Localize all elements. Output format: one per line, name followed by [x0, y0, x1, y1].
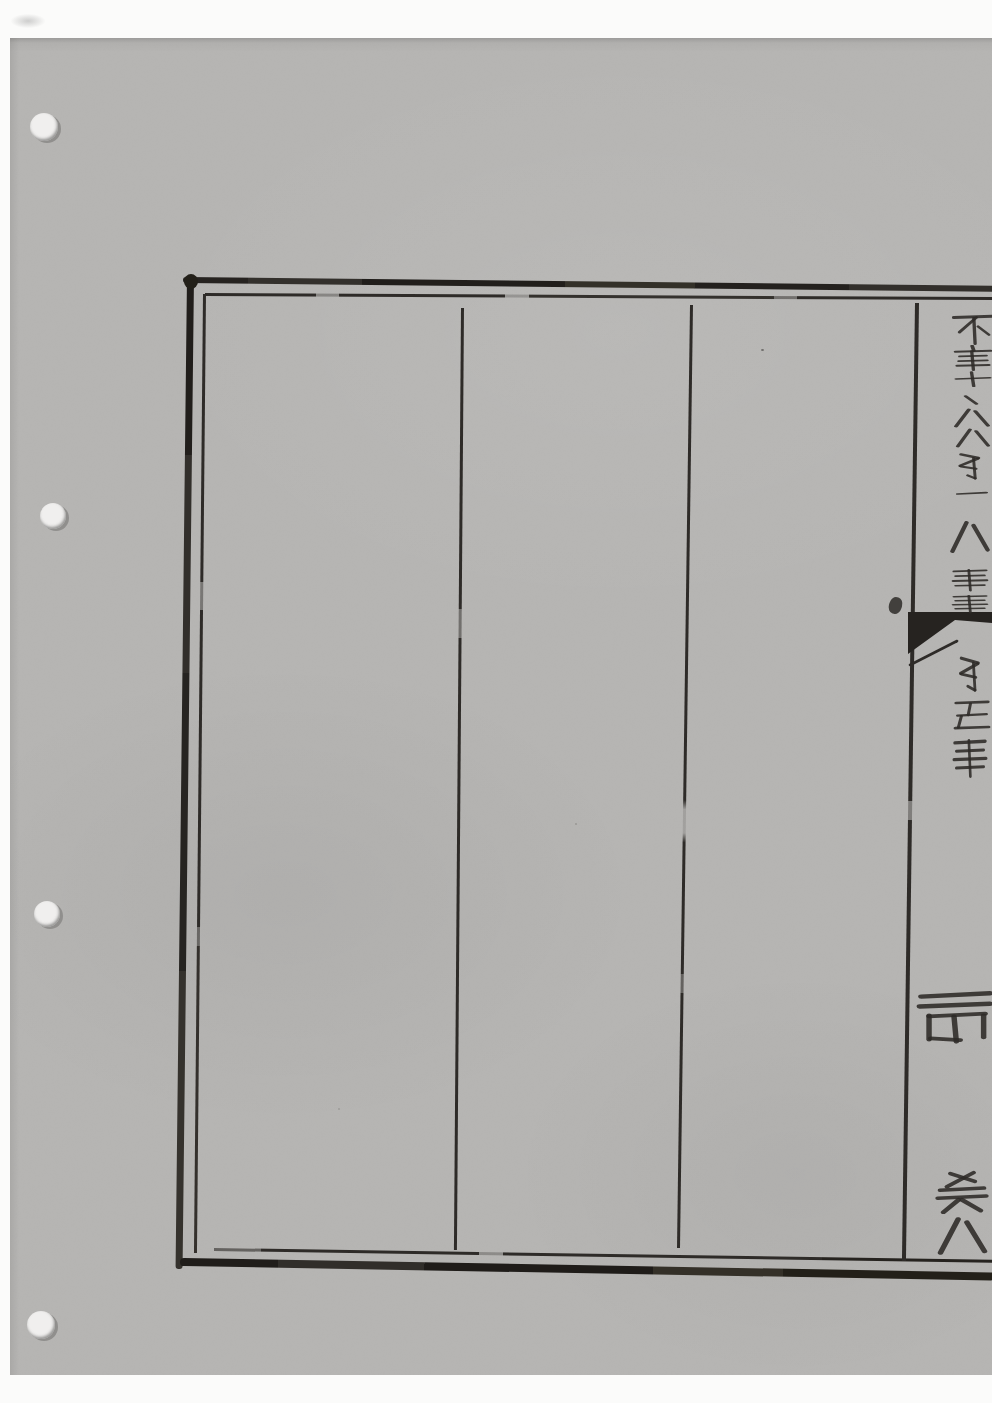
glyph-fragment-title-column: [954, 371, 992, 387]
paper-sheet: [10, 38, 992, 1375]
scan-edge-smudge: [6, 12, 50, 30]
frame-corner-blob: [184, 274, 198, 289]
punch-hole-opening: [27, 1311, 55, 1339]
glyph-fragment-title-column: [960, 394, 982, 406]
glyph-fragment-lower-fold: [935, 1216, 990, 1256]
glyph-fragment-page-number: [915, 990, 992, 1045]
glyph-fragment-lower-fold: [933, 1170, 991, 1214]
punch-hole-opening: [34, 901, 60, 927]
punch-hole: [34, 901, 60, 927]
glyph-fragment-below-fishtail: [951, 655, 991, 695]
punch-hole-opening: [30, 113, 58, 141]
scanned-page: [0, 0, 992, 1403]
punch-hole: [27, 1311, 55, 1339]
punch-hole: [40, 503, 66, 529]
glyph-fragment-title-column: [950, 568, 990, 592]
glyph-fragment-title-column: [952, 313, 992, 345]
glyph-fragment-title-column: [950, 594, 990, 614]
glyph-fragment-title-column: [952, 408, 992, 428]
punch-hole-opening: [40, 503, 66, 529]
punch-hole: [30, 113, 58, 141]
paper-speck: [575, 823, 577, 825]
glyph-fragment-title-column: [950, 452, 992, 482]
glyph-fragment-title-column: [952, 345, 992, 371]
glyph-fragment-below-fishtail: [951, 737, 989, 779]
glyph-fragment-title-column: [954, 428, 992, 448]
glyph-fragment-title-column: [956, 488, 988, 499]
paper-speck: [761, 349, 764, 351]
glyph-fragment-title-column: [948, 520, 992, 554]
glyph-fragment-below-fishtail: [953, 700, 991, 730]
paper-speck: [338, 1108, 340, 1110]
